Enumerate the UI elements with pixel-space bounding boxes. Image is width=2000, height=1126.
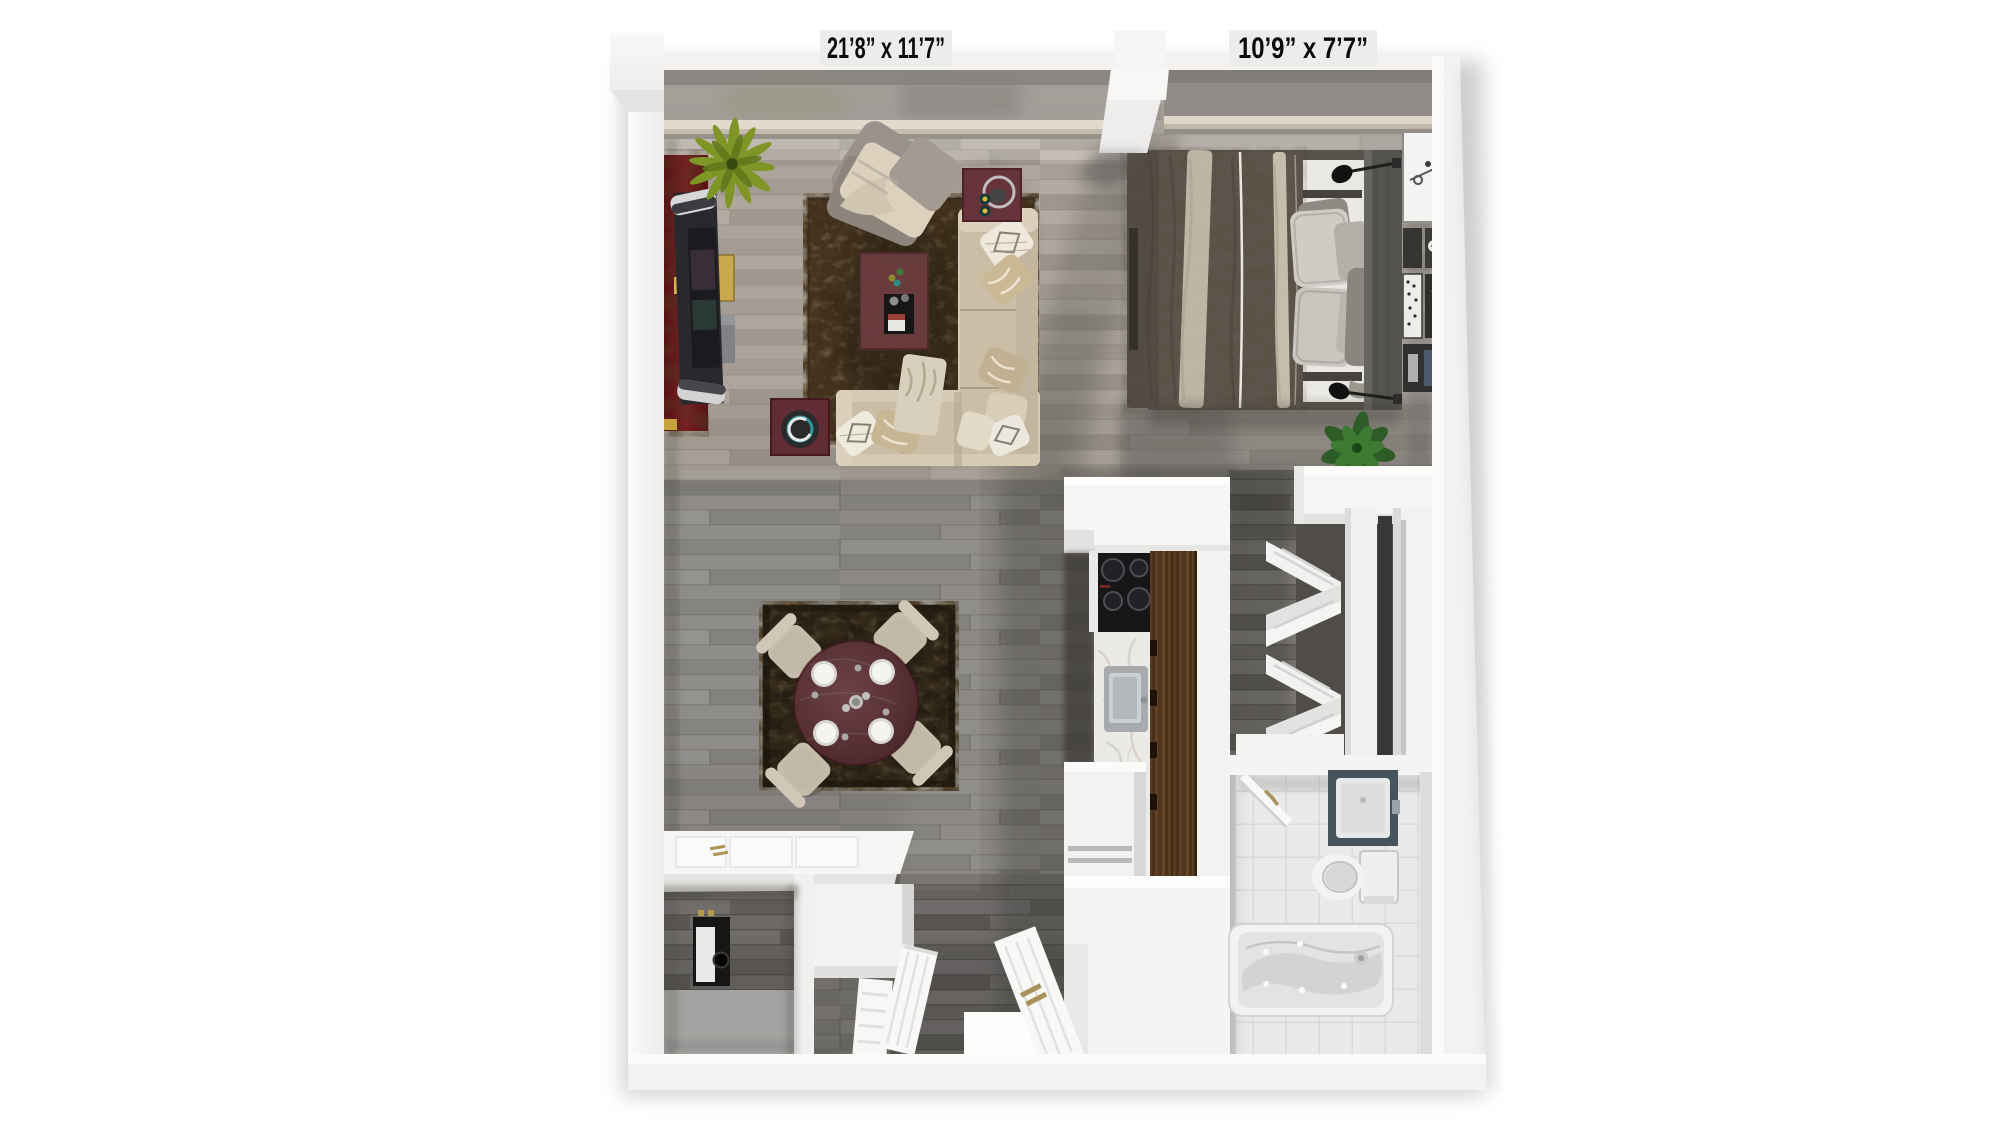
svg-text:10’9” x 7’7”: 10’9” x 7’7” xyxy=(1238,32,1368,65)
svg-text:21’8” x 11’7”: 21’8” x 11’7” xyxy=(827,32,945,65)
